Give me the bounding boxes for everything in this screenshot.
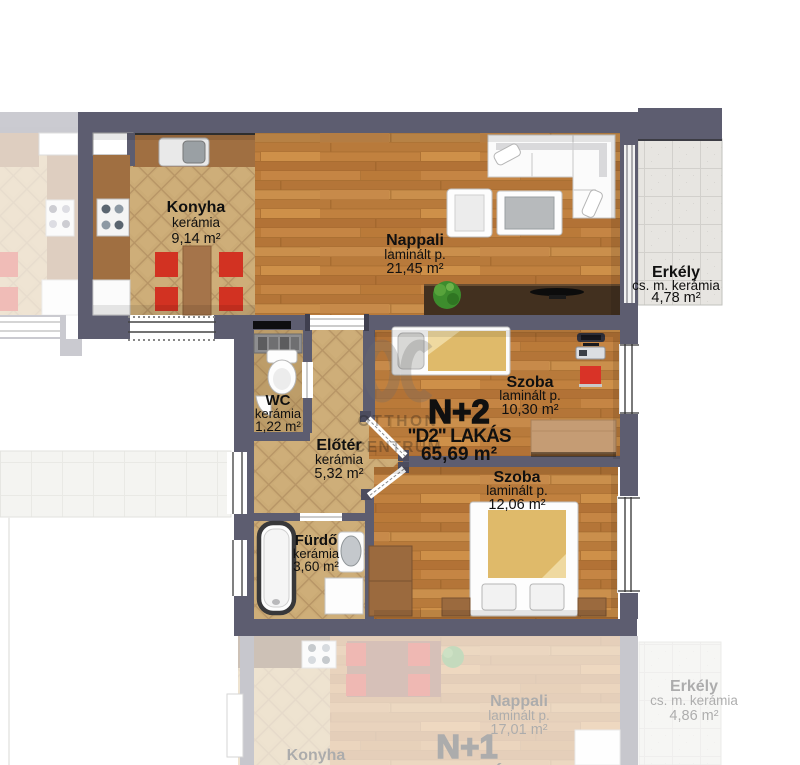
svg-text:cs. m. kerámia: cs. m. kerámia [650, 693, 738, 708]
svg-text:9,14 m²: 9,14 m² [171, 231, 220, 247]
svg-text:N+2: N+2 [428, 393, 489, 430]
svg-text:4,86 m²: 4,86 m² [669, 708, 718, 724]
svg-text:5,32 m²: 5,32 m² [314, 466, 363, 482]
svg-text:Konyha: Konyha [287, 747, 346, 764]
svg-text:3,60 m²: 3,60 m² [293, 559, 339, 574]
svg-text:Konyha: Konyha [167, 199, 226, 216]
svg-text:10,30 m²: 10,30 m² [501, 402, 558, 418]
svg-text:17,01 m²: 17,01 m² [490, 722, 547, 738]
svg-text:kerámia: kerámia [315, 452, 364, 467]
svg-text:1,22 m²: 1,22 m² [255, 419, 301, 434]
svg-text:laminált p.: laminált p. [488, 708, 550, 723]
svg-text:N+1: N+1 [436, 728, 497, 765]
svg-text:12,06 m²: 12,06 m² [488, 497, 545, 513]
svg-text:4,78 m²: 4,78 m² [651, 290, 700, 306]
svg-text:laminált p.: laminált p. [486, 483, 548, 498]
svg-text:65,69 m²: 65,69 m² [421, 444, 497, 465]
svg-text:laminált p.: laminált p. [384, 247, 446, 262]
svg-text:kerámia: kerámia [172, 215, 221, 230]
svg-text:21,45 m²: 21,45 m² [386, 261, 443, 277]
svg-text:laminált p.: laminált p. [499, 388, 561, 403]
